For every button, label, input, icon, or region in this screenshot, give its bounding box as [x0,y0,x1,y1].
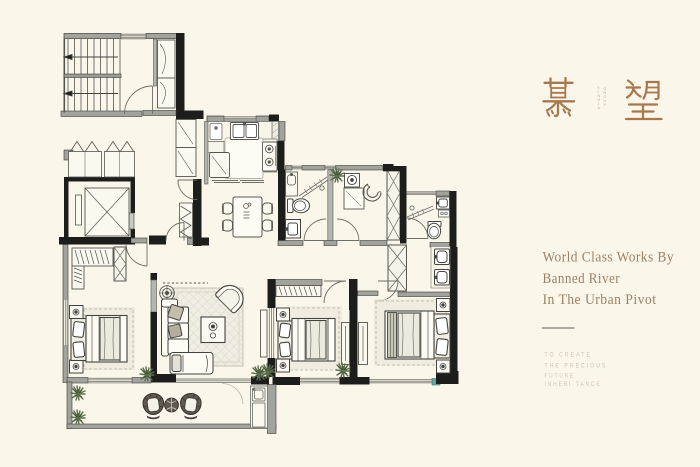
svg-text:TO CREATE: TO CREATE [545,352,593,359]
svg-text:FUTURE: FUTURE [545,372,576,379]
svg-text:World Class Works By: World Class Works By [543,250,675,266]
svg-text:Banned River: Banned River [543,271,621,287]
svg-text:INHERI·TANCE: INHERI·TANCE [545,381,602,388]
svg-text:THE PRECIOUS: THE PRECIOUS [545,362,608,369]
svg-text:In The Urban Pivot: In The Urban Pivot [543,292,657,308]
